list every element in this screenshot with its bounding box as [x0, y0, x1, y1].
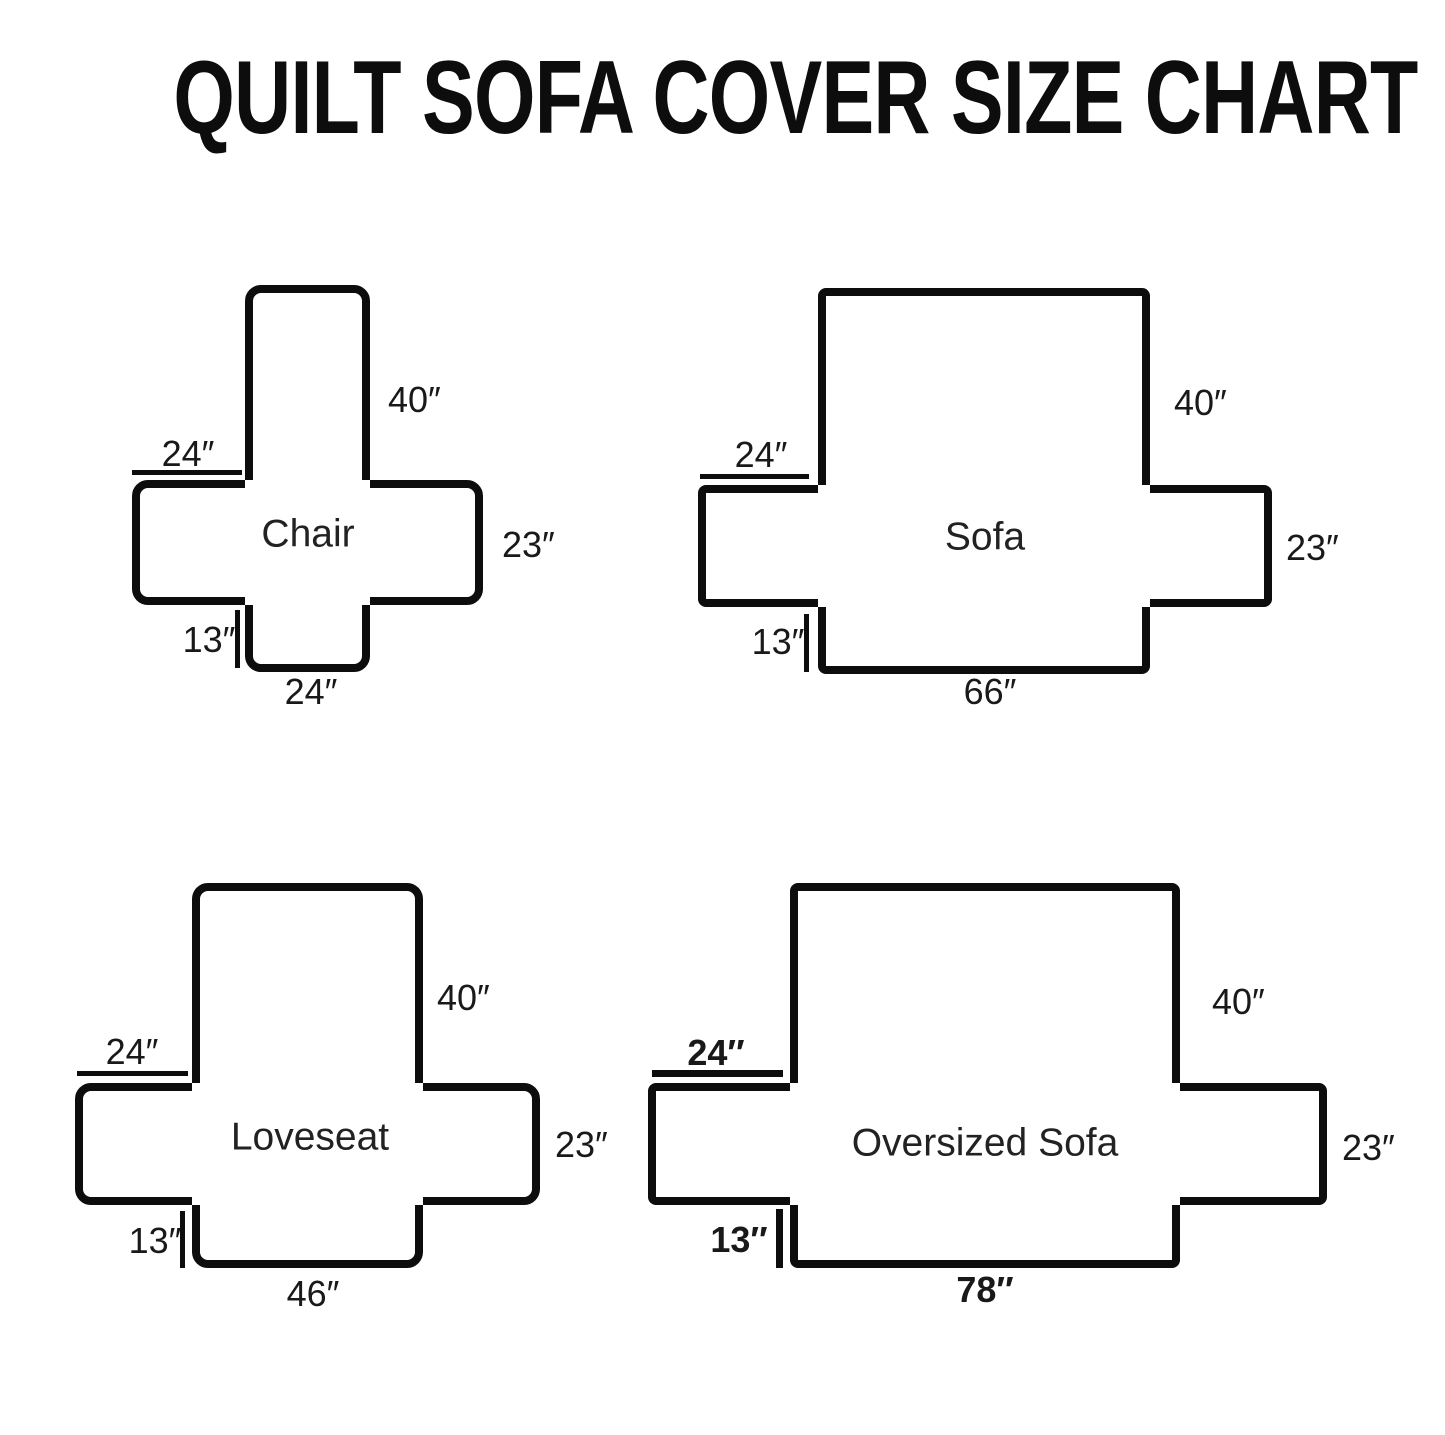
side-height-label: 23″ [1286, 530, 1339, 566]
diagram-name-label: Oversized Sofa [852, 1124, 1119, 1163]
size-chart-title: QUILT SOFA COVER SIZE CHART [173, 44, 1271, 153]
skirt-dimension-line [776, 1209, 783, 1268]
diagram-name-label: Loveseat [231, 1118, 389, 1157]
back-height-label: 40″ [1212, 984, 1265, 1020]
skirt-height-label: 13″ [183, 622, 236, 658]
seat-width-label: 24″ [285, 674, 338, 710]
side-height-label: 23″ [502, 527, 555, 563]
skirt-dimension-line [180, 1211, 185, 1268]
skirt-dimension-line [235, 610, 240, 668]
side-height-label: 23″ [555, 1127, 608, 1163]
arm-width-dimension-line [132, 470, 242, 475]
skirt-height-label: 13″ [752, 624, 805, 660]
loveseat-back-outline [192, 883, 423, 1268]
arm-width-dimension-line [652, 1070, 783, 1077]
diagram-name-label: Chair [261, 515, 354, 554]
arm-width-label: 24″ [687, 1035, 744, 1071]
arm-width-label: 24″ [735, 437, 788, 473]
back-height-label: 40″ [437, 980, 490, 1016]
sofa-back-outline [818, 288, 1150, 674]
skirt-height-label: 13″ [129, 1223, 182, 1259]
back-height-label: 40″ [1174, 385, 1227, 421]
side-height-label: 23″ [1342, 1130, 1395, 1166]
arm-width-label: 24″ [162, 436, 215, 472]
back-height-label: 40″ [388, 382, 441, 418]
chair-back-outline [245, 285, 370, 672]
skirt-dimension-line [804, 614, 809, 672]
skirt-height-label: 13″ [710, 1222, 767, 1258]
oversized-sofa-back-outline [790, 883, 1180, 1268]
arm-width-label: 24″ [106, 1034, 159, 1070]
seat-width-label: 66″ [964, 674, 1017, 710]
arm-width-dimension-line [700, 474, 809, 479]
seat-width-label: 46″ [287, 1276, 340, 1312]
diagram-name-label: Sofa [945, 518, 1025, 557]
seat-width-label: 78″ [956, 1272, 1013, 1308]
arm-width-dimension-line [77, 1071, 188, 1076]
